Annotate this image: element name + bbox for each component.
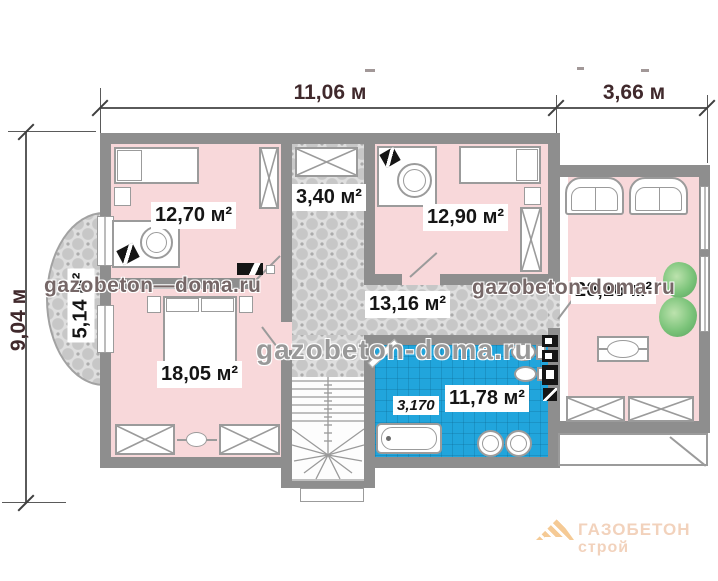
wardrobe-x bbox=[630, 398, 692, 420]
room-label-bedroom-top-left: 12,70 м² bbox=[151, 202, 236, 229]
dim-top-main: 11,06 м bbox=[260, 81, 400, 105]
wardrobe bbox=[259, 147, 279, 209]
left-dim-guide-bottom bbox=[2, 502, 66, 503]
stair-bay-bottom bbox=[281, 481, 375, 488]
wall-e bbox=[281, 278, 292, 468]
vent-shaft-hole bbox=[546, 370, 554, 379]
sofa-divider bbox=[659, 187, 661, 211]
watermark-right: gazobeton-doma.ru bbox=[472, 276, 675, 300]
stair-step bbox=[300, 488, 364, 502]
top-dimension-line bbox=[100, 107, 708, 109]
wall-bottom-bath bbox=[362, 457, 560, 468]
dim-top-wing: 3,66 м bbox=[575, 81, 693, 105]
wing-window-top-frame bbox=[704, 187, 706, 249]
door-opening-bedroom-top-right bbox=[402, 274, 440, 285]
floor-plan: 11,06 м 3,66 м 9,04 м bbox=[0, 0, 718, 581]
dim-left: 9,04 м bbox=[7, 280, 31, 360]
room-label-bedroom-bottom: 18,05 м² bbox=[157, 361, 242, 388]
balcony-door-bottom-frame bbox=[104, 306, 106, 352]
stair-bay-right bbox=[364, 457, 375, 483]
nightstand bbox=[239, 296, 253, 313]
room-label-bedroom-top-right: 12,90 м² bbox=[423, 204, 508, 231]
wardrobe-x bbox=[117, 426, 173, 453]
top-dim-guide-left bbox=[100, 88, 101, 133]
left-dim-guide-top bbox=[8, 131, 96, 132]
chair-seat bbox=[403, 169, 426, 192]
wall-wing-bottom bbox=[556, 421, 710, 433]
bathtub-length-label: 3,170 bbox=[393, 396, 439, 415]
nightstand bbox=[147, 296, 161, 313]
bed-pillow bbox=[516, 149, 538, 181]
bed-pillow bbox=[117, 150, 142, 181]
watermark-center: gazobeton-doma.ru bbox=[256, 334, 533, 366]
sink-basin bbox=[482, 435, 499, 452]
nightstand bbox=[524, 187, 541, 205]
wall-a bbox=[281, 133, 292, 286]
logo-house-body bbox=[545, 537, 567, 554]
bed-pillow bbox=[166, 298, 199, 312]
artifact-dash bbox=[365, 69, 375, 72]
room-label-bathroom: 11,78 м² bbox=[445, 385, 529, 412]
wardrobe bbox=[115, 424, 175, 455]
vent-shaft-hole bbox=[545, 338, 552, 344]
room-label-hallway: 13,16 м² bbox=[365, 291, 450, 318]
sofa bbox=[629, 177, 688, 215]
sink-basin bbox=[510, 435, 527, 452]
tv-stand bbox=[266, 265, 275, 274]
wing-window-bottom-frame bbox=[704, 257, 706, 331]
stair-bay-left bbox=[281, 457, 292, 483]
dresser-bowl bbox=[186, 432, 207, 447]
wardrobe bbox=[628, 396, 694, 422]
wall-wing-top bbox=[556, 165, 710, 177]
wardrobe bbox=[566, 396, 625, 422]
wardrobe-x bbox=[221, 426, 278, 453]
table-bowl bbox=[607, 340, 639, 358]
bidet-bowl bbox=[514, 366, 537, 382]
artifact-dash bbox=[641, 69, 649, 72]
vent-shaft-hole bbox=[545, 353, 552, 359]
wardrobe-x bbox=[568, 398, 623, 420]
wardrobe bbox=[295, 147, 358, 177]
logo-text-line2: строй bbox=[578, 539, 629, 557]
wardrobe-x bbox=[522, 209, 540, 270]
watermark-left: gazobeton—doma.ru bbox=[44, 274, 261, 298]
wall-top-main bbox=[100, 133, 560, 144]
stairs-drawing bbox=[292, 377, 364, 481]
bed-pillow bbox=[201, 298, 234, 312]
sofa bbox=[565, 177, 624, 215]
vent-wedge bbox=[543, 388, 557, 401]
artifact-dash bbox=[577, 67, 584, 70]
wardrobe-x bbox=[297, 149, 356, 175]
logo-text-line1: ГАЗОБЕТОН bbox=[578, 520, 691, 540]
bathtub-drain bbox=[386, 436, 391, 441]
room-label-closet: 3,40 м² bbox=[292, 184, 366, 211]
wardrobe bbox=[219, 424, 280, 455]
stairs bbox=[292, 377, 364, 481]
wall-left-main bbox=[100, 133, 111, 468]
sofa-divider bbox=[595, 187, 597, 211]
wall-bottom-left bbox=[100, 457, 282, 468]
wardrobe bbox=[520, 207, 542, 272]
logo: ГАЗОБЕТОН строй bbox=[536, 516, 706, 562]
chair-seat bbox=[146, 232, 167, 253]
balcony-door-top-frame bbox=[104, 217, 106, 265]
nightstand bbox=[114, 187, 131, 206]
wardrobe-x bbox=[261, 149, 277, 207]
